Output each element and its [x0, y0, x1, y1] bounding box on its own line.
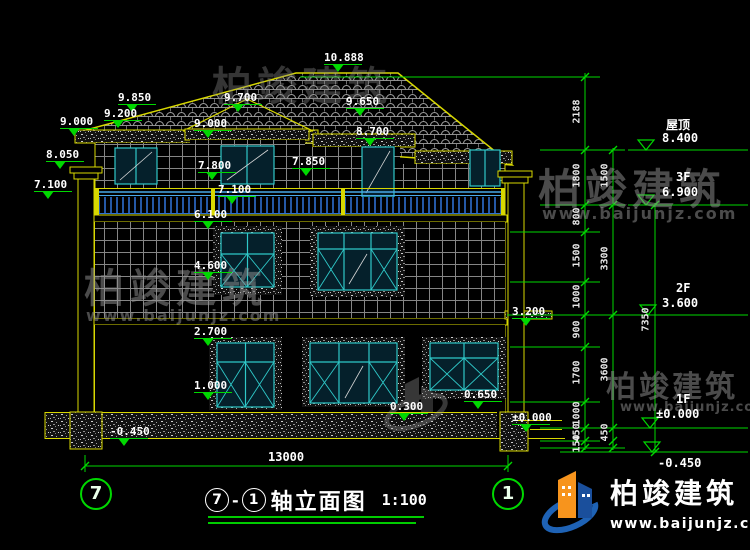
dim-value: 3300 [600, 237, 611, 281]
title-axis-a: 7 [205, 488, 229, 512]
elevation-label-window-sill: 1.000 [194, 380, 232, 402]
level-name-2f: 2F [676, 281, 690, 295]
level-value-2f: 3.600 [662, 296, 698, 310]
level-symbol [218, 196, 256, 206]
elevation-value: 8.050 [46, 148, 79, 161]
level-name-3f: 3F [676, 170, 690, 184]
dim-value: 900 [572, 308, 583, 352]
elevation-label-canopy: 7.850 [292, 156, 330, 178]
level-symbol [390, 413, 428, 423]
elevation-label-eave: 9.650 [346, 96, 384, 118]
elevation-value: 9.700 [224, 91, 257, 104]
elevation-label-grade: -0.450 [110, 426, 150, 448]
level-symbol [104, 120, 142, 130]
level-symbol [512, 424, 550, 434]
title-text: 轴立面图 [271, 484, 367, 516]
dim-value: 1500 [600, 154, 611, 198]
logo-company-name: 柏竣建筑 [610, 472, 750, 512]
level-symbol [346, 108, 384, 118]
elevation-label-eave: 8.700 [356, 126, 394, 148]
elevation-value: 8.700 [356, 125, 389, 138]
elevation-label-window-top: 7.800 [198, 160, 236, 182]
elevation-value: 7.850 [292, 155, 325, 168]
elevation-label-gable-eave: 9.000 [194, 118, 232, 140]
level-value-roof: 8.400 [662, 131, 698, 145]
level-symbol [198, 172, 236, 182]
elevation-label-eave: 9.200 [104, 108, 142, 130]
title-axis-b: 1 [242, 488, 266, 512]
elevation-value: 6.100 [194, 208, 227, 221]
cad-viewport: 柏竣建筑 www.baijunjz.com 柏竣建筑 www.baijunjz.… [0, 0, 750, 550]
elevation-label-plinth: 0.300 [390, 401, 428, 423]
level-symbol [194, 272, 232, 282]
level-symbol [60, 128, 98, 138]
level-value-1f: ±0.000 [656, 407, 699, 421]
elevation-label-balcony: 7.100 [218, 184, 256, 206]
elevation-value: -0.450 [110, 425, 150, 438]
dim-value: 7350 [641, 298, 652, 342]
elevation-value: 9.850 [118, 91, 151, 104]
level-symbol [194, 338, 232, 348]
dim-value: 2188 [572, 90, 583, 134]
elevation-label-window-top: 6.100 [194, 209, 232, 231]
balcony-railing [95, 188, 505, 215]
title-underline [208, 516, 424, 518]
elevation-label-capital: 8.050 [46, 149, 84, 171]
level-symbol [356, 138, 394, 148]
elevation-label-eave: 9.000 [60, 116, 98, 138]
dim-value: 450 [600, 411, 611, 455]
elevation-value: 3.200 [512, 305, 545, 318]
level-symbol [110, 438, 148, 448]
level-name-1f: 1F [676, 392, 690, 406]
dim-value: 150 [572, 422, 583, 466]
level-symbol [512, 318, 550, 328]
elevation-value: 9.000 [60, 115, 93, 128]
elevation-value: 4.600 [194, 259, 227, 272]
title-underline [208, 522, 416, 524]
dim-value: 1800 [572, 154, 583, 198]
title-dash: - [232, 491, 239, 510]
elevation-label-window-top: 2.700 [194, 326, 232, 348]
level-symbol [464, 401, 502, 411]
level-symbol [194, 392, 232, 402]
elevation-label-zero: ±0.000 [512, 412, 552, 434]
elevation-value: 9.200 [104, 107, 137, 120]
elevation-value: ±0.000 [512, 411, 552, 424]
elevation-label-gable-peak: 9.700 [224, 92, 262, 114]
elevation-value: 7.800 [198, 159, 231, 172]
elevation-value: 0.300 [390, 400, 423, 413]
level-symbol [324, 64, 362, 74]
axis-bubble-left: 7 [80, 478, 112, 510]
elevation-value: 7.100 [34, 178, 67, 191]
elevation-label-window-sill: 4.600 [194, 260, 232, 282]
elevation-label-side-canopy: 3.200 [512, 306, 550, 328]
overall-dimension: 13000 [268, 450, 304, 464]
elevation-label-balcony: 7.100 [34, 179, 72, 201]
level-symbol [194, 130, 232, 140]
level-symbol [46, 161, 84, 171]
title-scale: 1:100 [382, 491, 427, 509]
elevation-value: 10.888 [324, 51, 364, 64]
company-logo[interactable]: 柏竣建筑 www.baijunjz.com [540, 466, 750, 538]
level-symbol [194, 221, 232, 231]
elevation-value: 9.650 [346, 95, 379, 108]
axis-bubble-right: 1 [492, 478, 524, 510]
elevation-value: 7.100 [218, 183, 251, 196]
level-symbol [292, 168, 330, 178]
elevation-label-porch: 0.650 [464, 389, 502, 411]
dim-value: 3600 [600, 348, 611, 392]
logo-website[interactable]: www.baijunjz.com [610, 516, 750, 532]
elevation-value: 1.000 [194, 379, 227, 392]
drawing-title: 7 - 1 轴立面图 1:100 [205, 484, 427, 516]
second-floor-wall [95, 222, 505, 318]
level-symbol [224, 104, 262, 114]
elevation-value: 9.000 [194, 117, 227, 130]
elevation-label-ridge: 10.888 [324, 52, 364, 74]
level-value-3f: 6.900 [662, 185, 698, 199]
dim-value: 800 [572, 195, 583, 239]
logo-mark-icon [540, 466, 602, 538]
elevation-value: 0.650 [464, 388, 497, 401]
level-symbol [34, 191, 72, 201]
elevation-value: 2.700 [194, 325, 227, 338]
dim-value: 1700 [572, 351, 583, 395]
dim-value: 1500 [572, 234, 583, 278]
